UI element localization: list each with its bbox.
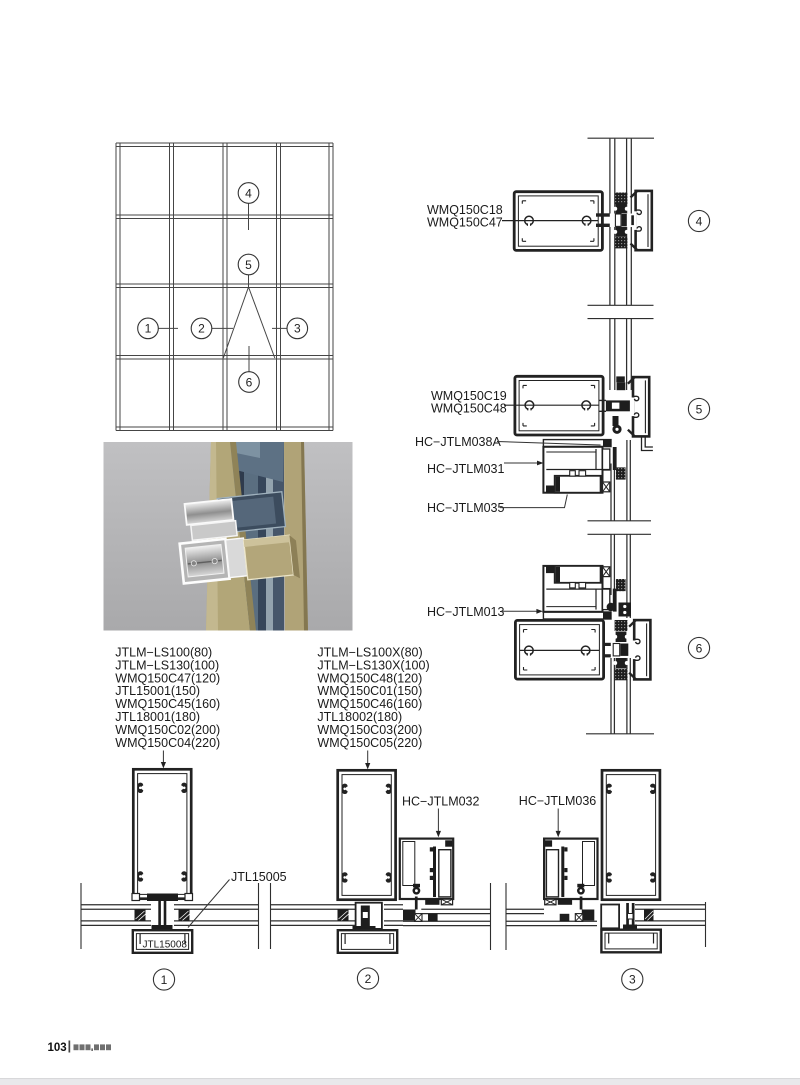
svg-text:WMQ150C47(120): WMQ150C47(120): [115, 671, 220, 685]
svg-text:5: 5: [696, 402, 703, 416]
svg-text:6: 6: [696, 641, 703, 655]
svg-text:WMQ150C47: WMQ150C47: [427, 216, 503, 230]
svg-text:JTL15001(150): JTL15001(150): [115, 684, 200, 698]
svg-text:JTL15005: JTL15005: [231, 870, 287, 884]
svg-text:WMQ150C48(120): WMQ150C48(120): [317, 671, 422, 685]
svg-text:JTLM−LS100(80): JTLM−LS100(80): [115, 646, 212, 660]
svg-text:HC−JTLM013: HC−JTLM013: [427, 605, 505, 619]
svg-text:WMQ150C04(220): WMQ150C04(220): [115, 736, 220, 750]
svg-text:WMQ150C01(150): WMQ150C01(150): [317, 684, 422, 698]
svg-text:4: 4: [245, 186, 252, 200]
svg-text:JTLM−LS100X(80): JTLM−LS100X(80): [317, 646, 422, 660]
svg-text:WMQ150C05(220): WMQ150C05(220): [317, 736, 422, 750]
svg-text:4: 4: [696, 214, 703, 228]
svg-text:1: 1: [161, 973, 168, 987]
svg-text:3: 3: [294, 322, 301, 336]
svg-text:5: 5: [245, 258, 252, 272]
svg-text:HC−JTLM031: HC−JTLM031: [427, 462, 505, 476]
svg-text:6: 6: [246, 375, 253, 389]
svg-text:2: 2: [365, 972, 372, 986]
svg-text:HC−JTLM032: HC−JTLM032: [402, 795, 480, 809]
svg-text:JTL18002(180): JTL18002(180): [317, 710, 402, 724]
svg-text:JTLM−LS130(100): JTLM−LS130(100): [115, 658, 219, 672]
svg-text:103: 103: [48, 1042, 67, 1054]
svg-text:3: 3: [629, 973, 636, 987]
svg-text:2: 2: [198, 322, 205, 336]
svg-text:JTL15008: JTL15008: [143, 940, 188, 951]
svg-text:WMQ150C45(160): WMQ150C45(160): [115, 697, 220, 711]
svg-text:WMQ150C03(200): WMQ150C03(200): [317, 723, 422, 737]
svg-text:JTLM−LS130X(100): JTLM−LS130X(100): [317, 658, 429, 672]
svg-text:HC−JTLM036: HC−JTLM036: [519, 794, 597, 808]
svg-text:HC−JTLM035: HC−JTLM035: [427, 501, 505, 515]
svg-text:JTL18001(180): JTL18001(180): [115, 710, 200, 724]
svg-text:1: 1: [145, 322, 152, 336]
svg-text:WMQ150C02(200): WMQ150C02(200): [115, 723, 220, 737]
svg-text:HC−JTLM038A: HC−JTLM038A: [415, 435, 501, 449]
svg-text:WMQ150C48: WMQ150C48: [431, 402, 507, 416]
svg-text:WMQ150C46(160): WMQ150C46(160): [317, 697, 422, 711]
